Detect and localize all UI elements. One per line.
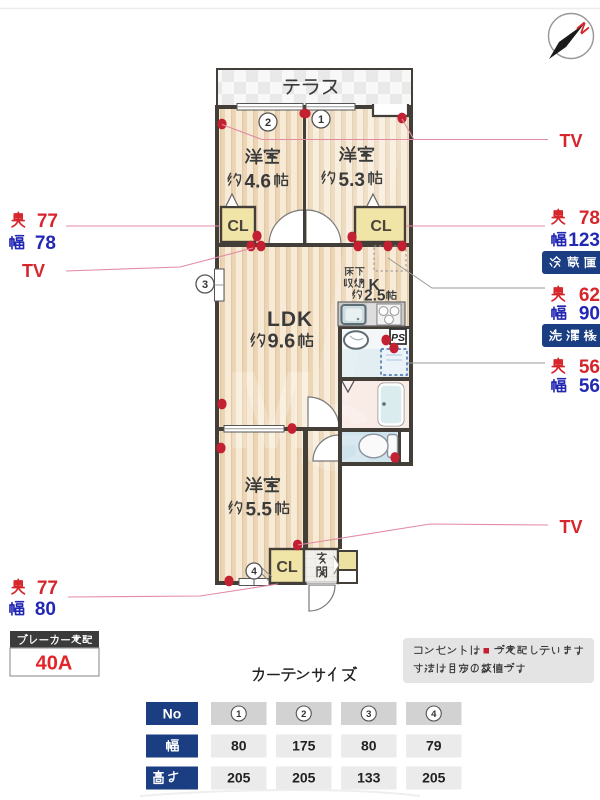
svg-text:4: 4: [431, 709, 437, 720]
svg-text:78: 78: [579, 208, 600, 229]
svg-text:77: 77: [37, 578, 58, 599]
svg-text:205: 205: [227, 770, 251, 786]
svg-text:1: 1: [318, 114, 324, 126]
svg-text:CL: CL: [227, 218, 249, 235]
svg-text:LDK: LDK: [267, 308, 313, 331]
svg-text:TV: TV: [559, 517, 582, 537]
svg-text:TV: TV: [559, 131, 582, 151]
svg-text:56: 56: [579, 376, 600, 397]
svg-text:80: 80: [35, 599, 56, 620]
svg-text:205: 205: [292, 770, 316, 786]
svg-text:123: 123: [568, 230, 600, 251]
svg-text:175: 175: [292, 738, 316, 754]
svg-text:CL: CL: [370, 218, 392, 235]
svg-text:133: 133: [357, 770, 381, 786]
svg-text:205: 205: [422, 770, 446, 786]
svg-text:90: 90: [579, 304, 600, 325]
svg-text:4: 4: [251, 567, 257, 578]
svg-text:80: 80: [231, 738, 247, 754]
svg-text:4.6: 4.6: [245, 172, 271, 193]
svg-text:3: 3: [366, 709, 371, 720]
svg-text:78: 78: [35, 233, 56, 254]
svg-text:PS: PS: [391, 332, 405, 344]
svg-text:5.3: 5.3: [339, 170, 365, 191]
svg-text:No: No: [163, 706, 182, 722]
svg-text:80: 80: [361, 738, 377, 754]
svg-text:56: 56: [579, 357, 600, 378]
svg-text:2: 2: [265, 117, 271, 129]
svg-text:TV: TV: [22, 261, 45, 281]
svg-text:40A: 40A: [36, 653, 73, 675]
svg-text:1: 1: [236, 709, 242, 720]
svg-text:9.6: 9.6: [268, 331, 296, 353]
svg-text:79: 79: [426, 738, 442, 754]
svg-text:2: 2: [301, 709, 306, 720]
svg-text:CL: CL: [276, 559, 298, 576]
svg-text:3: 3: [202, 279, 208, 291]
svg-text:5.5: 5.5: [246, 500, 273, 521]
svg-text:2.5: 2.5: [364, 288, 386, 305]
svg-text:77: 77: [37, 211, 58, 232]
